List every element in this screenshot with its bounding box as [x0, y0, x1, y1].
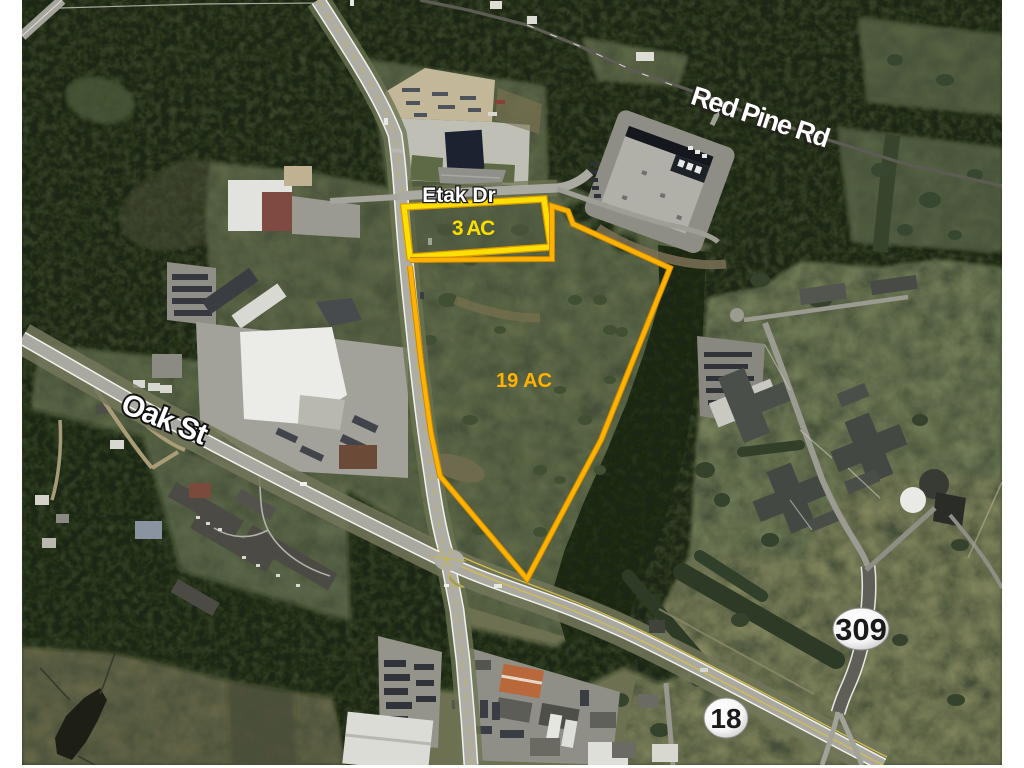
svg-text:18: 18 [710, 703, 741, 734]
svg-text:Etak Dr: Etak Dr [422, 184, 496, 207]
svg-text:19 AC: 19 AC [496, 370, 552, 392]
svg-text:3 AC: 3 AC [452, 217, 495, 240]
svg-text:309: 309 [835, 612, 887, 647]
